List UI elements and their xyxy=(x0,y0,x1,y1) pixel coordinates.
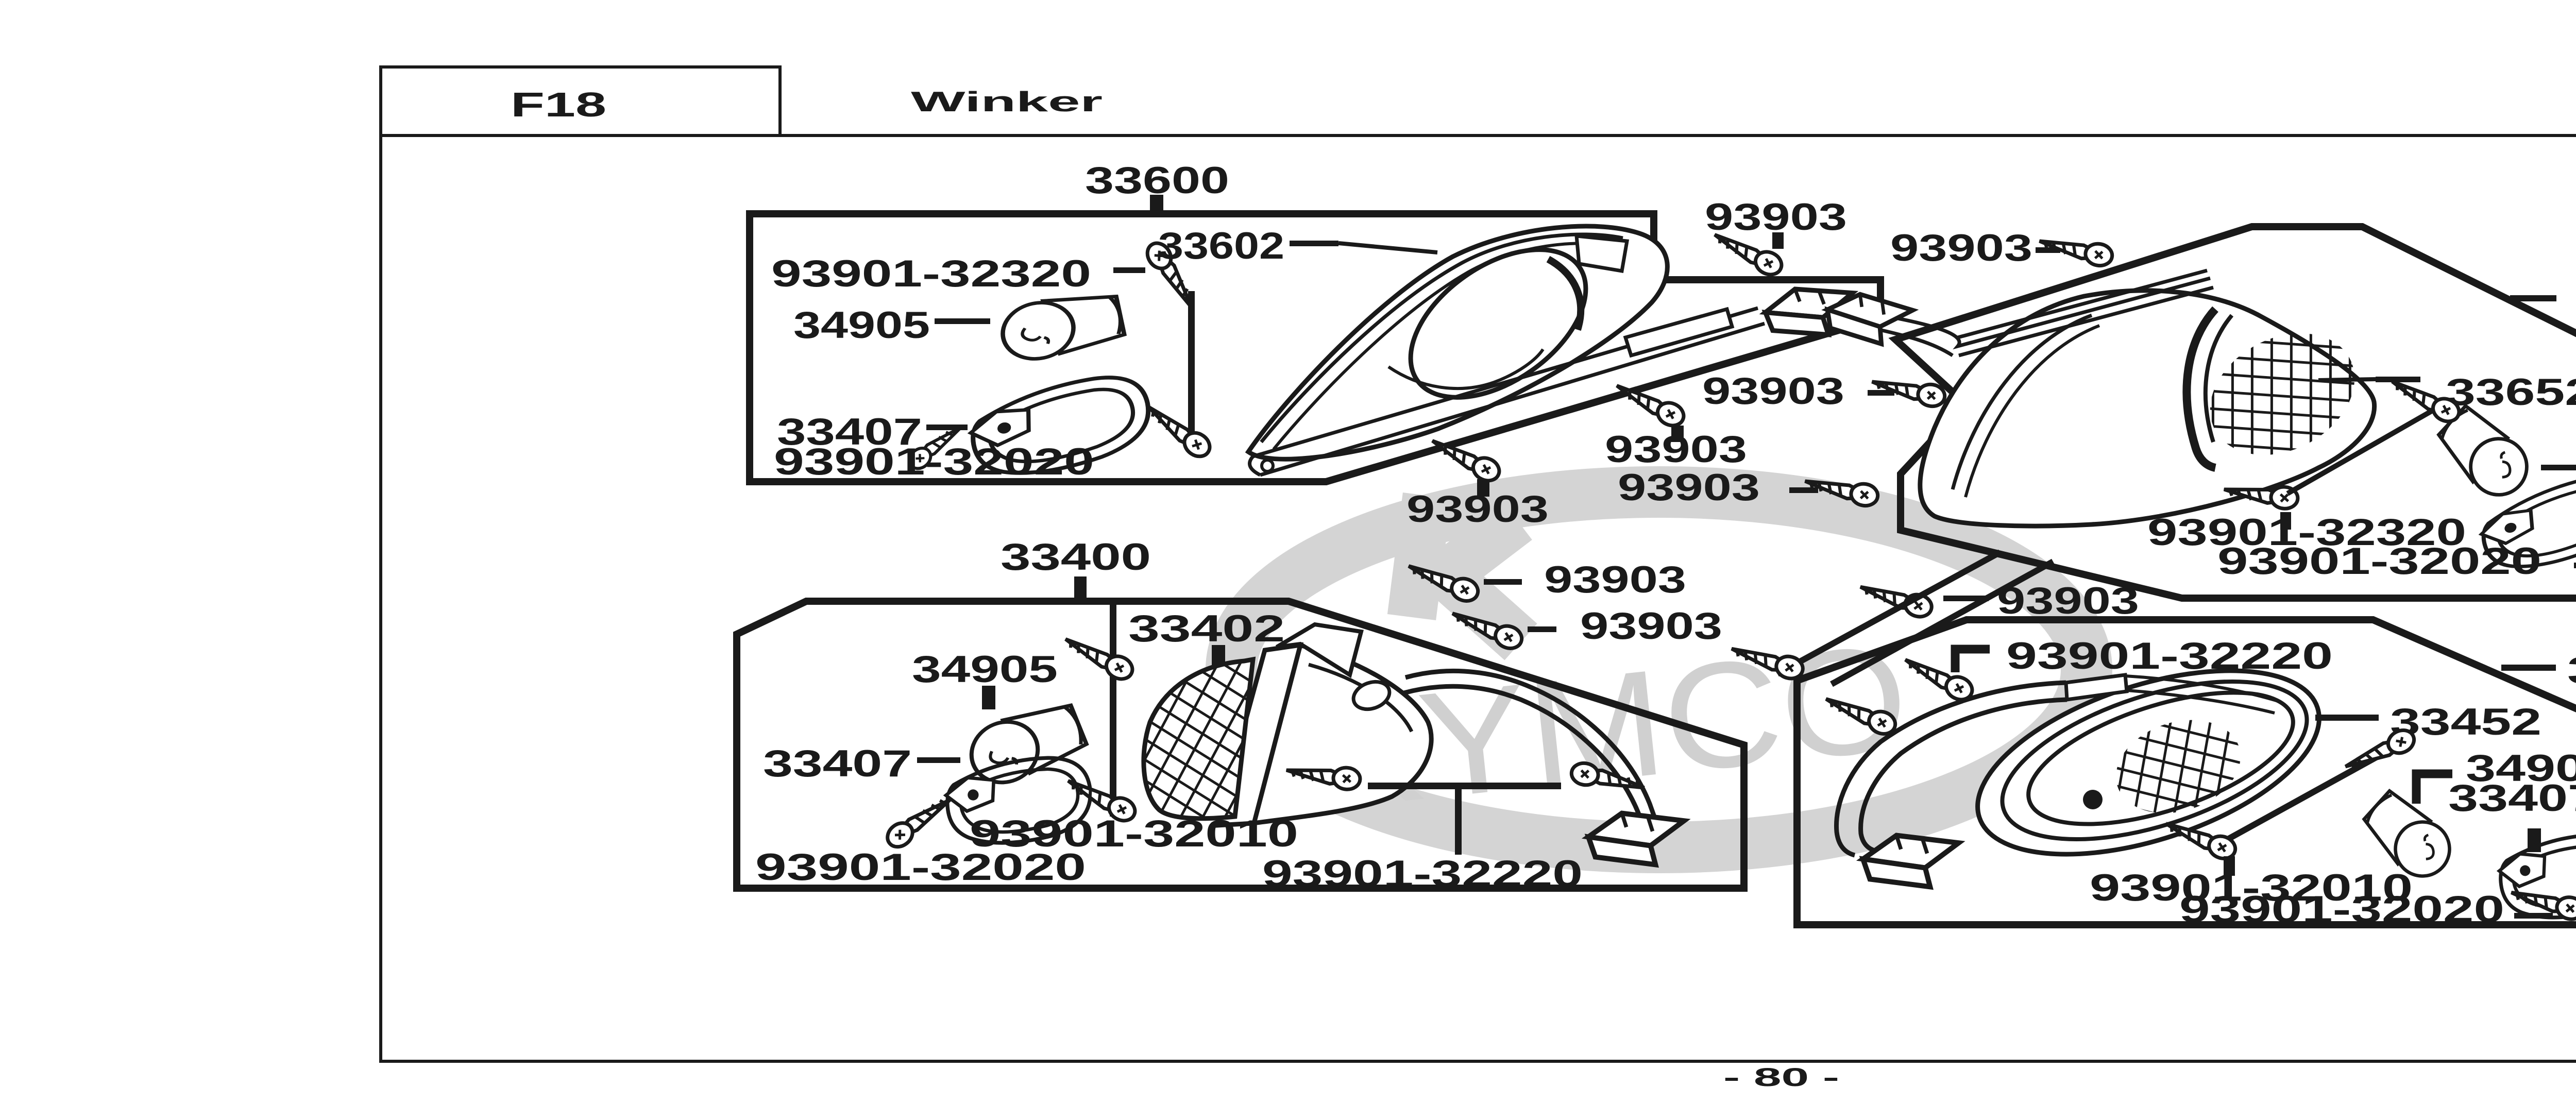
svg-text:93903: 93903 xyxy=(1544,559,1686,601)
svg-text:33407: 33407 xyxy=(763,743,912,785)
svg-text:33402: 33402 xyxy=(1128,608,1285,650)
svg-text:93901-32220: 93901-32220 xyxy=(2006,635,2333,677)
svg-text:33450: 33450 xyxy=(2567,650,2576,691)
svg-text:34905: 34905 xyxy=(793,304,930,346)
svg-text:93901-32020: 93901-32020 xyxy=(2217,540,2541,582)
svg-text:93903: 93903 xyxy=(1997,580,2139,622)
svg-text:Winker: Winker xyxy=(911,86,1103,117)
svg-text:93901-32020: 93901-32020 xyxy=(774,441,1094,483)
svg-text:93901-32010: 93901-32010 xyxy=(970,813,1298,855)
svg-text:34905: 34905 xyxy=(912,649,1058,690)
svg-text:93903: 93903 xyxy=(1890,227,2032,269)
svg-text:93903: 93903 xyxy=(1705,196,1847,238)
svg-text:93901-32220: 93901-32220 xyxy=(1262,853,1583,895)
svg-text:33400: 33400 xyxy=(1001,536,1151,578)
svg-text:93903: 93903 xyxy=(1580,605,1722,647)
svg-text:93901-32020: 93901-32020 xyxy=(2179,889,2504,930)
svg-text:33407: 33407 xyxy=(2448,777,2576,819)
svg-text:93903: 93903 xyxy=(1618,467,1760,508)
svg-text:- 80 -: - 80 - xyxy=(1723,1063,1839,1092)
svg-text:33602: 33602 xyxy=(1158,225,1284,267)
svg-text:F18: F18 xyxy=(511,86,606,124)
svg-text:93901-32320: 93901-32320 xyxy=(771,253,1091,295)
svg-text:93903: 93903 xyxy=(1702,370,1844,412)
